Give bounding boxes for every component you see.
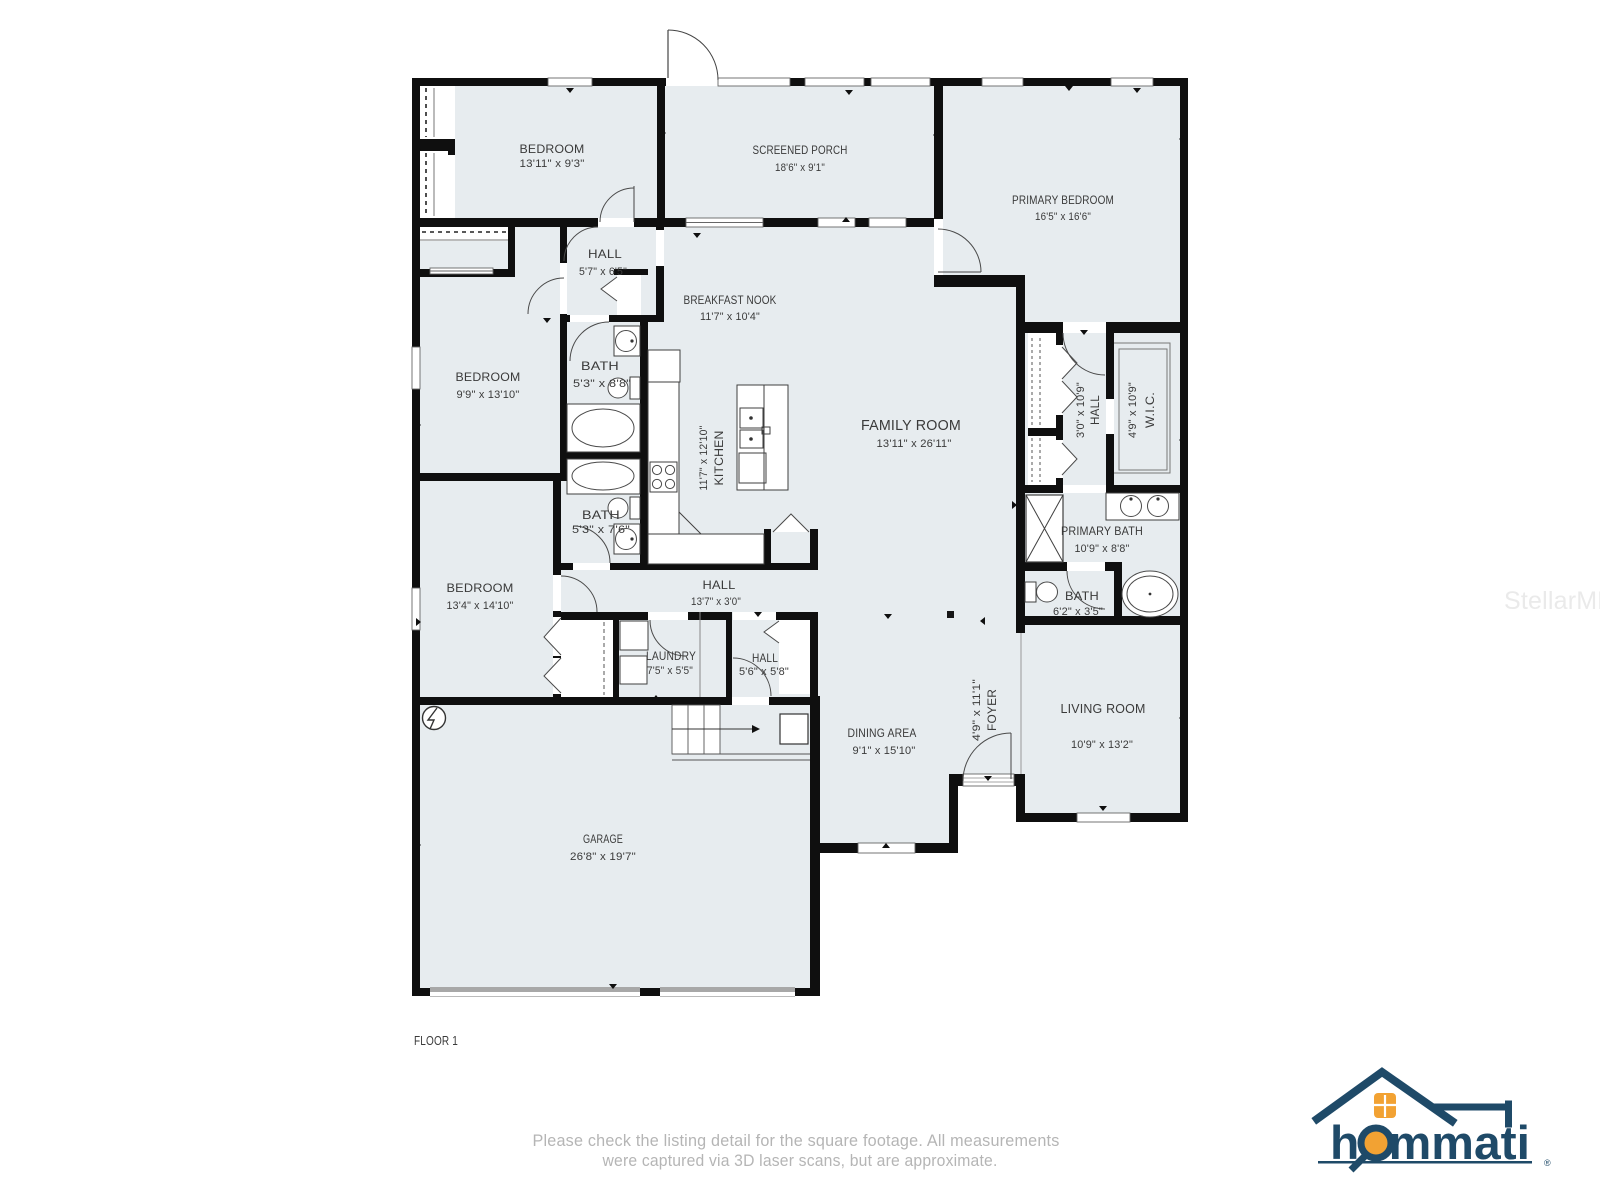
svg-text:16'5" x 16'6": 16'5" x 16'6" xyxy=(1035,211,1091,223)
svg-text:4'9" x 11'1": 4'9" x 11'1" xyxy=(971,679,983,741)
svg-text:9'1" x 15'10": 9'1" x 15'10" xyxy=(853,745,916,757)
svg-text:18'6" x 9'1": 18'6" x 9'1" xyxy=(775,162,825,174)
svg-text:BATH: BATH xyxy=(582,508,620,522)
svg-text:13'4" x 14'10": 13'4" x 14'10" xyxy=(447,600,514,612)
svg-text:GARAGE: GARAGE xyxy=(583,832,623,846)
svg-text:FAMILY ROOM: FAMILY ROOM xyxy=(861,418,961,434)
svg-text:BEDROOM: BEDROOM xyxy=(447,581,514,595)
svg-text:BEDROOM: BEDROOM xyxy=(520,142,585,156)
svg-text:5'6" x 5'8": 5'6" x 5'8" xyxy=(739,666,789,678)
svg-text:26'8" x 19'7": 26'8" x 19'7" xyxy=(570,851,636,863)
svg-text:10'9" x 8'8": 10'9" x 8'8" xyxy=(1075,543,1130,555)
svg-text:11'7" x 10'4": 11'7" x 10'4" xyxy=(700,311,760,323)
svg-text:5'3" x 8'8": 5'3" x 8'8" xyxy=(573,378,631,390)
svg-text:BREAKFAST NOOK: BREAKFAST NOOK xyxy=(684,293,777,307)
svg-text:BEDROOM: BEDROOM xyxy=(456,370,521,384)
svg-text:LAUNDRY: LAUNDRY xyxy=(646,649,696,663)
svg-text:PRIMARY BEDROOM: PRIMARY BEDROOM xyxy=(1012,193,1114,207)
svg-text:13'7" x 3'0": 13'7" x 3'0" xyxy=(691,596,741,608)
svg-text:4'9" x 10'9": 4'9" x 10'9" xyxy=(1127,382,1139,438)
svg-text:3'0" x 10'9": 3'0" x 10'9" xyxy=(1075,382,1087,438)
svg-text:6'2" x 3'5": 6'2" x 3'5" xyxy=(1053,606,1103,618)
svg-text:BATH: BATH xyxy=(1065,589,1099,603)
svg-text:9'9" x 13'10": 9'9" x 13'10" xyxy=(457,389,520,401)
svg-text:W.I.C.: W.I.C. xyxy=(1143,392,1157,428)
svg-text:13'11" x 9'3": 13'11" x 9'3" xyxy=(520,158,585,170)
svg-text:11'7" x 12'10": 11'7" x 12'10" xyxy=(698,426,710,491)
svg-text:Please check the listing detai: Please check the listing detail for the … xyxy=(533,1132,1060,1150)
svg-text:DINING AREA: DINING AREA xyxy=(848,726,917,740)
svg-text:FLOOR 1: FLOOR 1 xyxy=(414,1034,458,1048)
svg-text:PRIMARY BATH: PRIMARY BATH xyxy=(1061,524,1143,538)
svg-text:HALL: HALL xyxy=(1088,395,1102,425)
svg-text:5'3" x 7'6": 5'3" x 7'6" xyxy=(572,524,630,536)
svg-text:HALL: HALL xyxy=(588,247,622,261)
svg-text:KITCHEN: KITCHEN xyxy=(712,431,726,486)
svg-text:FOYER: FOYER xyxy=(985,689,999,731)
svg-text:SCREENED PORCH: SCREENED PORCH xyxy=(753,143,848,157)
svg-text:5'7" x 6'5": 5'7" x 6'5" xyxy=(579,266,627,278)
svg-text:HALL: HALL xyxy=(752,651,778,665)
svg-text:®: ® xyxy=(1544,1158,1551,1168)
svg-text:LIVING ROOM: LIVING ROOM xyxy=(1061,702,1146,716)
svg-text:10'9" x 13'2": 10'9" x 13'2" xyxy=(1071,739,1133,751)
svg-text:HALL: HALL xyxy=(703,578,736,592)
svg-text:13'11" x 26'11": 13'11" x 26'11" xyxy=(877,438,952,450)
svg-text:were captured via 3D laser sca: were captured via 3D laser scans, but ar… xyxy=(602,1152,998,1170)
svg-text:7'5" x 5'5": 7'5" x 5'5" xyxy=(647,665,693,677)
svg-text:StellarMLS: StellarMLS xyxy=(1504,587,1600,615)
svg-text:BATH: BATH xyxy=(581,359,619,373)
